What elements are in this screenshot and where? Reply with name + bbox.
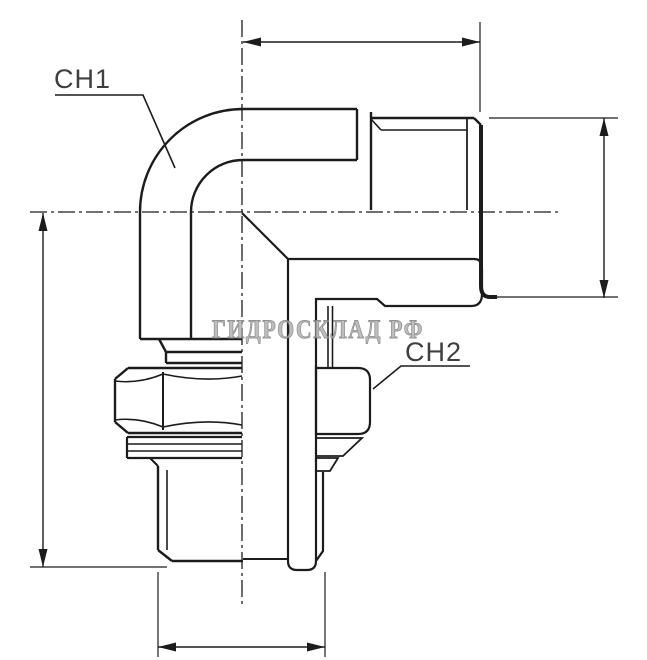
nut-chamfer-curve-tr	[163, 374, 242, 379]
nut-bottom-chamfer	[115, 422, 128, 433]
technical-drawing-canvas: CH1 CH2 ГИДРОСКЛАД РФ	[0, 0, 647, 660]
washer-section-wedge	[316, 438, 362, 456]
dimension-left	[30, 213, 167, 567]
nut-chamfer-curve-tl	[115, 374, 163, 382]
hex-nut-external	[115, 368, 242, 433]
ch2-leader-line	[373, 366, 470, 389]
stud-tip-chamfer	[158, 550, 172, 561]
washer-section	[316, 438, 362, 471]
stud-entry-chamfer	[150, 458, 158, 466]
arrow-up-icon	[39, 213, 48, 231]
label-ch1: CH1	[54, 64, 111, 94]
arrow-right-icon	[462, 38, 480, 47]
bottom-stud-external	[150, 458, 243, 561]
arrow-down-icon	[600, 280, 609, 298]
dimension-top	[243, 22, 480, 112]
dimension-right	[489, 118, 618, 298]
locknut-section	[316, 368, 370, 434]
body-section-hatched	[242, 213, 482, 570]
inner-arc	[191, 160, 243, 212]
nut-top-chamfer	[115, 368, 128, 379]
right-stud-external	[371, 112, 618, 297]
washer-external	[127, 437, 242, 458]
arrow-down-icon	[39, 549, 48, 567]
elbow-fitting-drawing: CH1 CH2 ГИДРОСКЛАД РФ	[0, 0, 647, 660]
stud-end-chamfer	[474, 118, 481, 125]
nut-chamfer-curve-br	[163, 422, 242, 427]
thread-entry-chamfer	[371, 119, 381, 130]
locknut-section-body	[316, 368, 370, 434]
arrow-up-icon	[600, 118, 609, 136]
drill-cone-line	[242, 213, 288, 259]
arrow-right-icon	[307, 643, 325, 652]
watermark-text: ГИДРОСКЛАД РФ	[212, 315, 424, 344]
body-chamfer	[159, 339, 166, 352]
nut-chamfer-curve-bl	[115, 419, 163, 427]
washer-section-band	[316, 458, 338, 471]
arrow-left-icon	[243, 38, 261, 47]
stud-end-face	[481, 125, 497, 297]
arrow-left-icon	[158, 643, 176, 652]
